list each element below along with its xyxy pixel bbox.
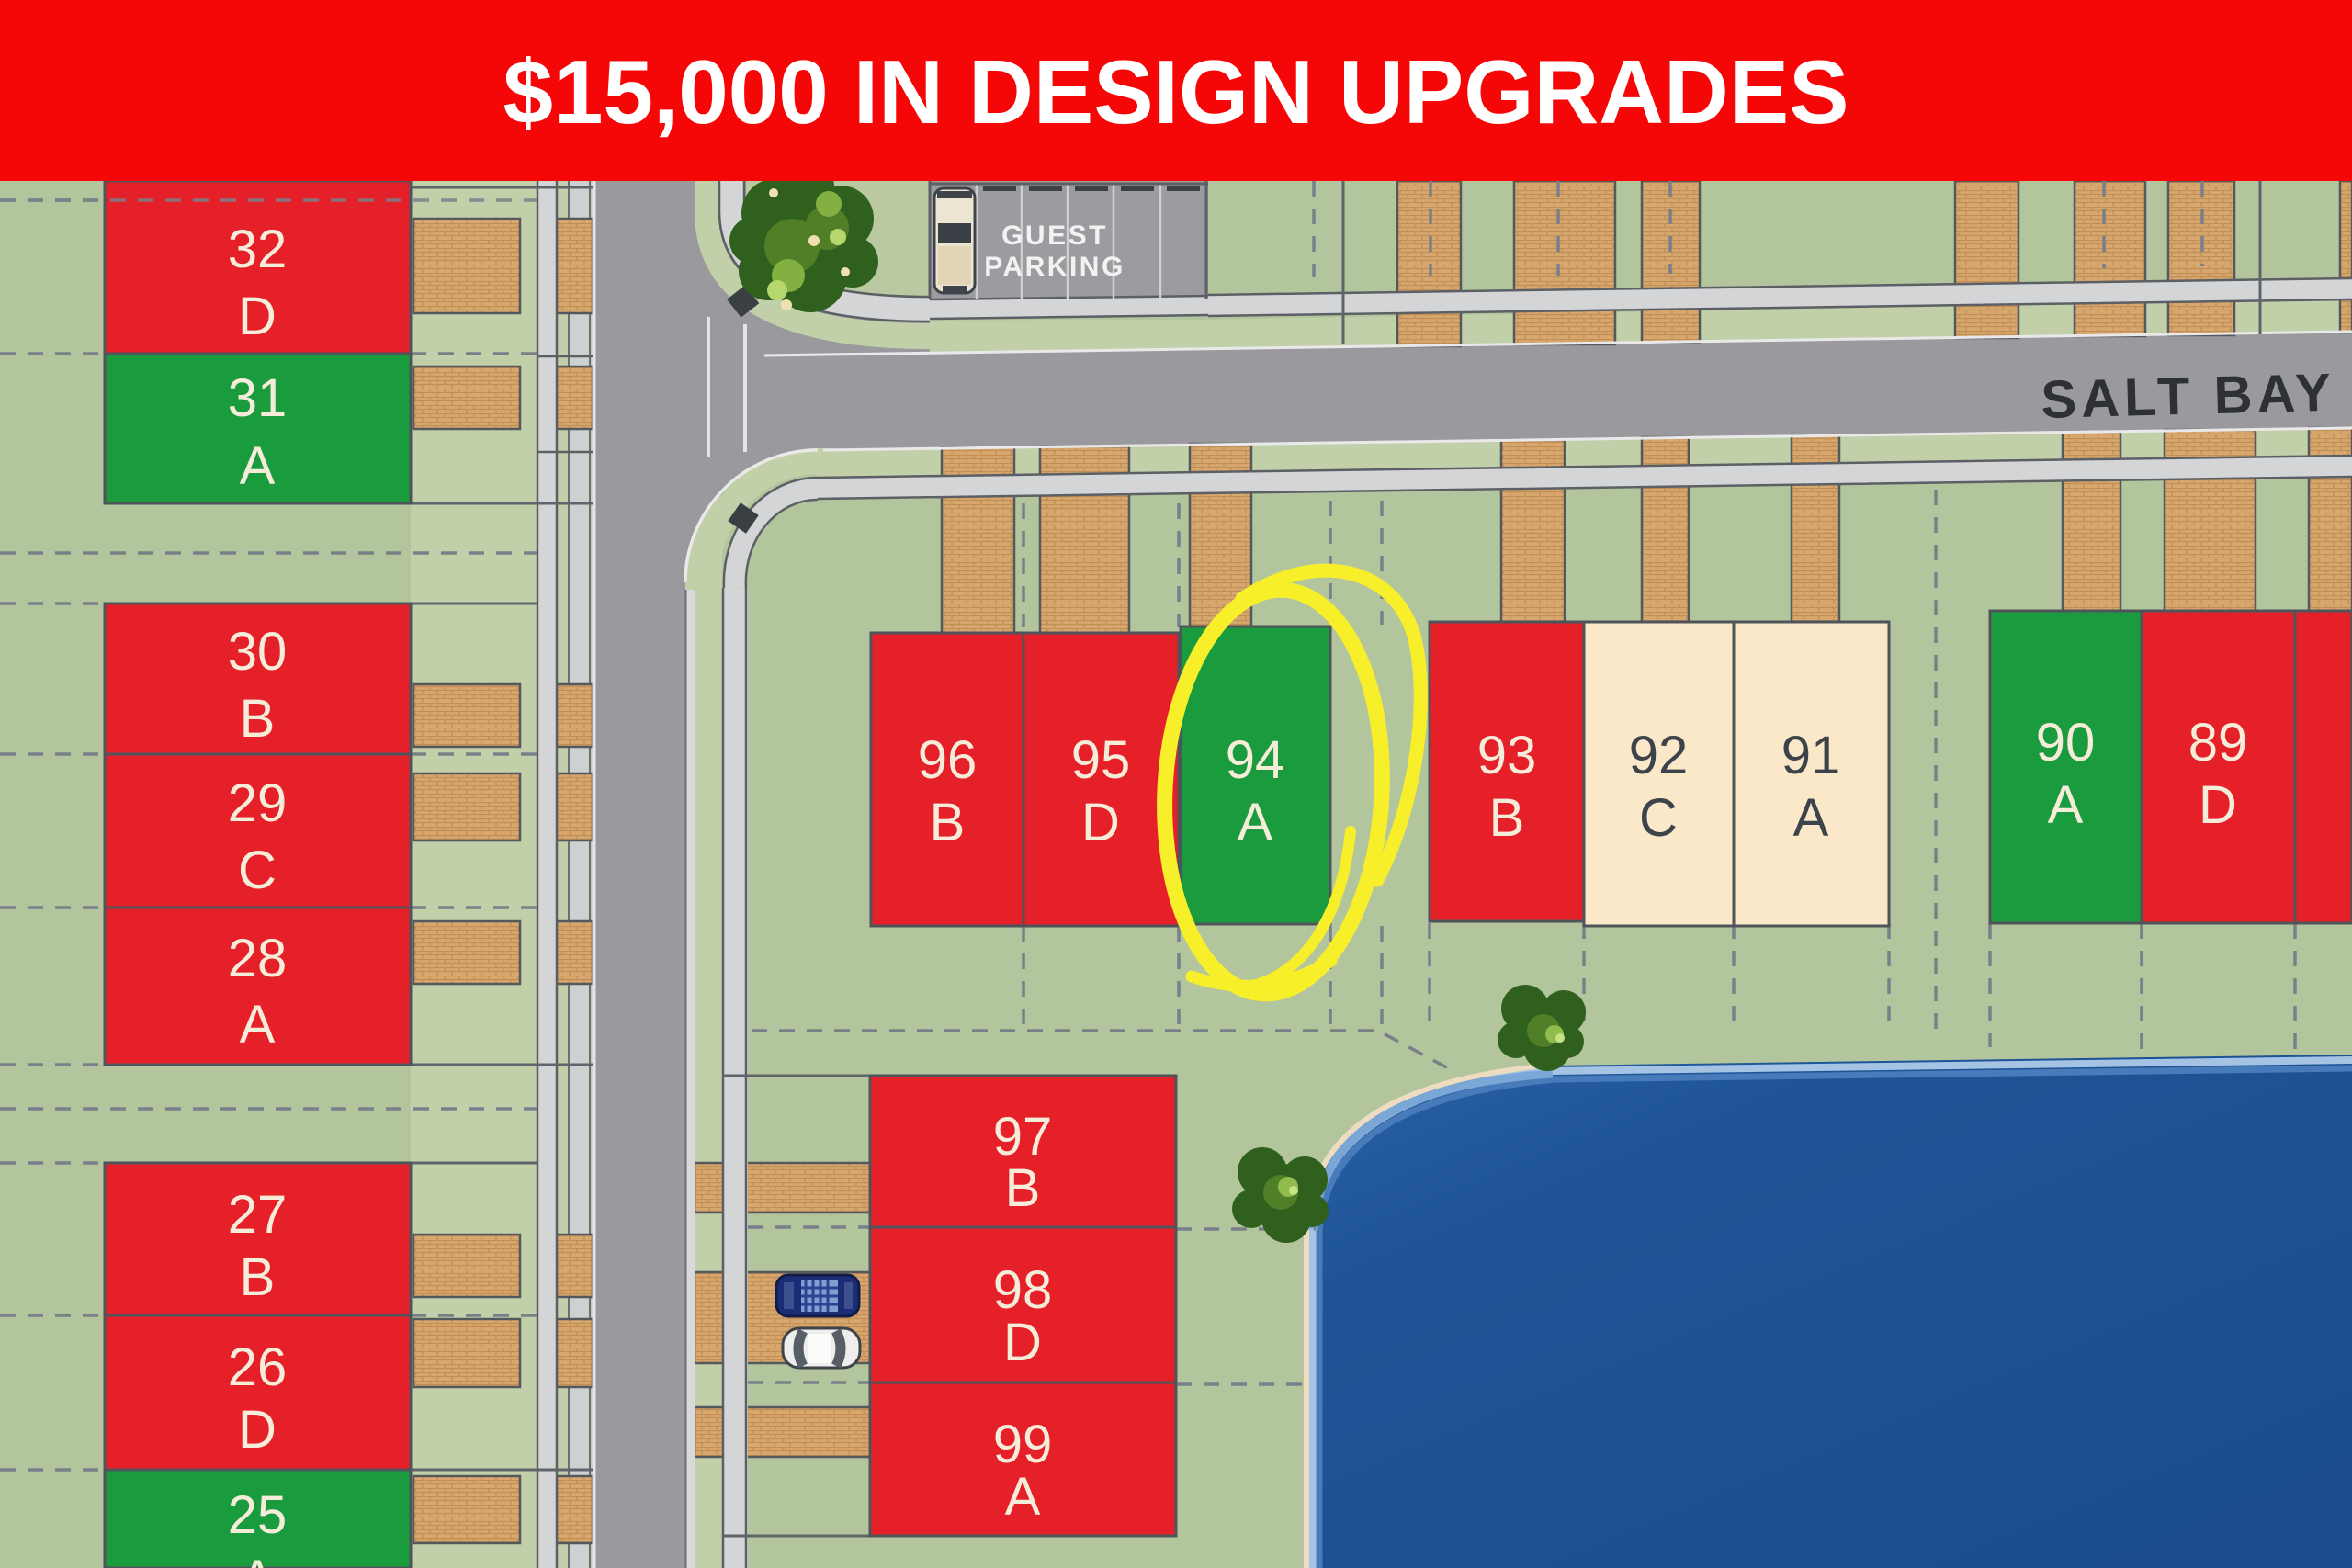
svg-text:D: D (238, 287, 277, 346)
svg-text:PARKING: PARKING (984, 252, 1125, 282)
svg-text:95: 95 (1071, 730, 1131, 790)
svg-text:A: A (240, 1550, 276, 1568)
svg-text:96: 96 (918, 730, 978, 790)
svg-text:B: B (240, 689, 276, 749)
svg-text:$15,000 IN DESIGN UPGRADES: $15,000 IN DESIGN UPGRADES (503, 41, 1849, 142)
svg-text:B: B (1005, 1158, 1041, 1218)
svg-text:C: C (238, 840, 277, 900)
svg-text:30: 30 (228, 622, 288, 682)
svg-text:91: 91 (1781, 726, 1841, 785)
svg-text:92: 92 (1629, 726, 1689, 785)
svg-text:26: 26 (228, 1337, 288, 1397)
svg-text:99: 99 (993, 1415, 1053, 1474)
svg-text:29: 29 (228, 773, 288, 833)
svg-text:31: 31 (228, 368, 288, 428)
svg-text:28: 28 (228, 929, 288, 988)
svg-text:D: D (1003, 1313, 1042, 1372)
svg-text:98: 98 (993, 1260, 1053, 1320)
svg-text:27: 27 (228, 1185, 288, 1245)
svg-text:B: B (930, 793, 966, 852)
svg-text:GUEST: GUEST (1001, 220, 1108, 251)
svg-text:SALT BAY: SALT BAY (2041, 363, 2336, 430)
svg-text:D: D (1081, 793, 1120, 852)
svg-text:A: A (1005, 1467, 1041, 1527)
svg-text:25: 25 (228, 1485, 288, 1545)
svg-text:90: 90 (2036, 713, 2096, 773)
svg-text:D: D (2199, 775, 2237, 835)
svg-text:A: A (240, 436, 276, 496)
svg-text:32: 32 (228, 220, 288, 279)
svg-text:B: B (240, 1247, 276, 1307)
svg-text:C: C (1639, 788, 1678, 848)
svg-text:A: A (1793, 788, 1829, 848)
svg-text:B: B (1489, 788, 1525, 848)
svg-text:89: 89 (2188, 713, 2248, 773)
svg-text:D: D (238, 1400, 277, 1460)
svg-text:93: 93 (1477, 726, 1537, 785)
svg-text:A: A (240, 995, 276, 1055)
svg-text:A: A (1238, 793, 1273, 852)
svg-text:A: A (2048, 775, 2084, 835)
svg-text:94: 94 (1226, 730, 1285, 790)
